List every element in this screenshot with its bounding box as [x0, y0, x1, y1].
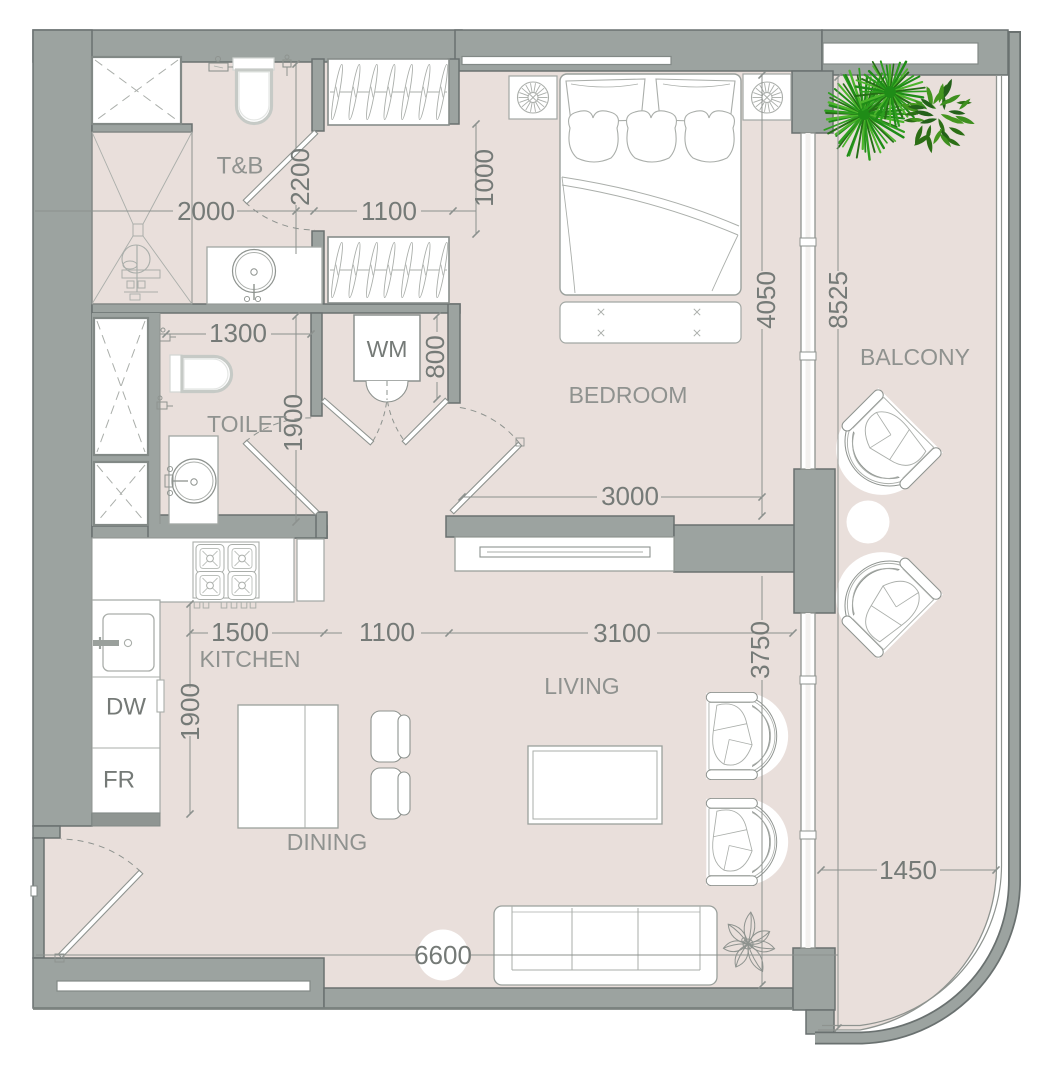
- svg-text:DW: DW: [106, 694, 146, 721]
- svg-text:1100: 1100: [361, 196, 417, 226]
- svg-text:T&B: T&B: [217, 153, 264, 180]
- svg-text:BEDROOM: BEDROOM: [569, 382, 688, 408]
- svg-text:3750: 3750: [745, 621, 775, 679]
- svg-text:1300: 1300: [209, 318, 267, 348]
- svg-text:800: 800: [420, 335, 450, 378]
- svg-text:2000: 2000: [177, 196, 235, 226]
- svg-text:WM: WM: [367, 336, 408, 362]
- svg-text:1450: 1450: [879, 855, 937, 885]
- svg-text:1500: 1500: [211, 617, 269, 647]
- svg-text:2200: 2200: [285, 148, 315, 206]
- svg-text:KITCHEN: KITCHEN: [200, 646, 301, 672]
- svg-text:8525: 8525: [823, 271, 853, 329]
- svg-text:1100: 1100: [359, 617, 415, 647]
- svg-text:6600: 6600: [414, 940, 472, 970]
- svg-text:4050: 4050: [751, 271, 781, 329]
- svg-text:LIVING: LIVING: [544, 673, 619, 699]
- svg-text:TOILET: TOILET: [207, 411, 287, 437]
- svg-text:3000: 3000: [601, 481, 659, 511]
- svg-text:1900: 1900: [175, 683, 205, 741]
- svg-text:FR: FR: [103, 767, 135, 794]
- svg-text:DINING: DINING: [287, 829, 368, 855]
- svg-text:BALCONY: BALCONY: [860, 344, 970, 370]
- svg-text:1000: 1000: [469, 149, 499, 207]
- svg-text:3100: 3100: [593, 618, 651, 648]
